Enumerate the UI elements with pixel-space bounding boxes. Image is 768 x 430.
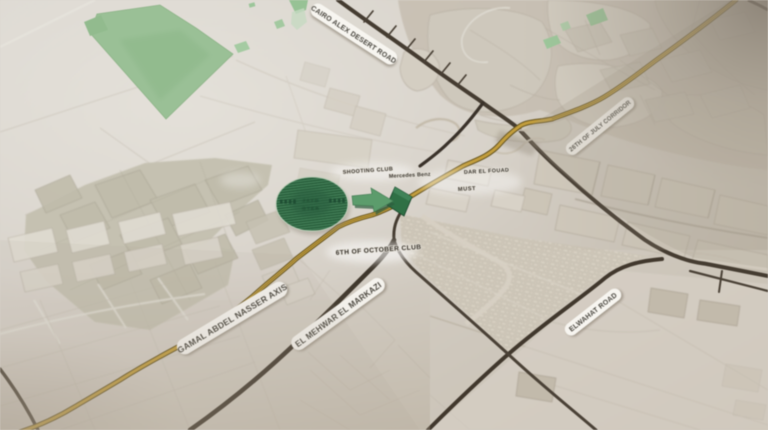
svg-text:MUST: MUST [458,186,477,193]
svg-text:JAYD: JAYD [302,198,319,204]
svg-text:OTER: OTER [302,206,320,212]
